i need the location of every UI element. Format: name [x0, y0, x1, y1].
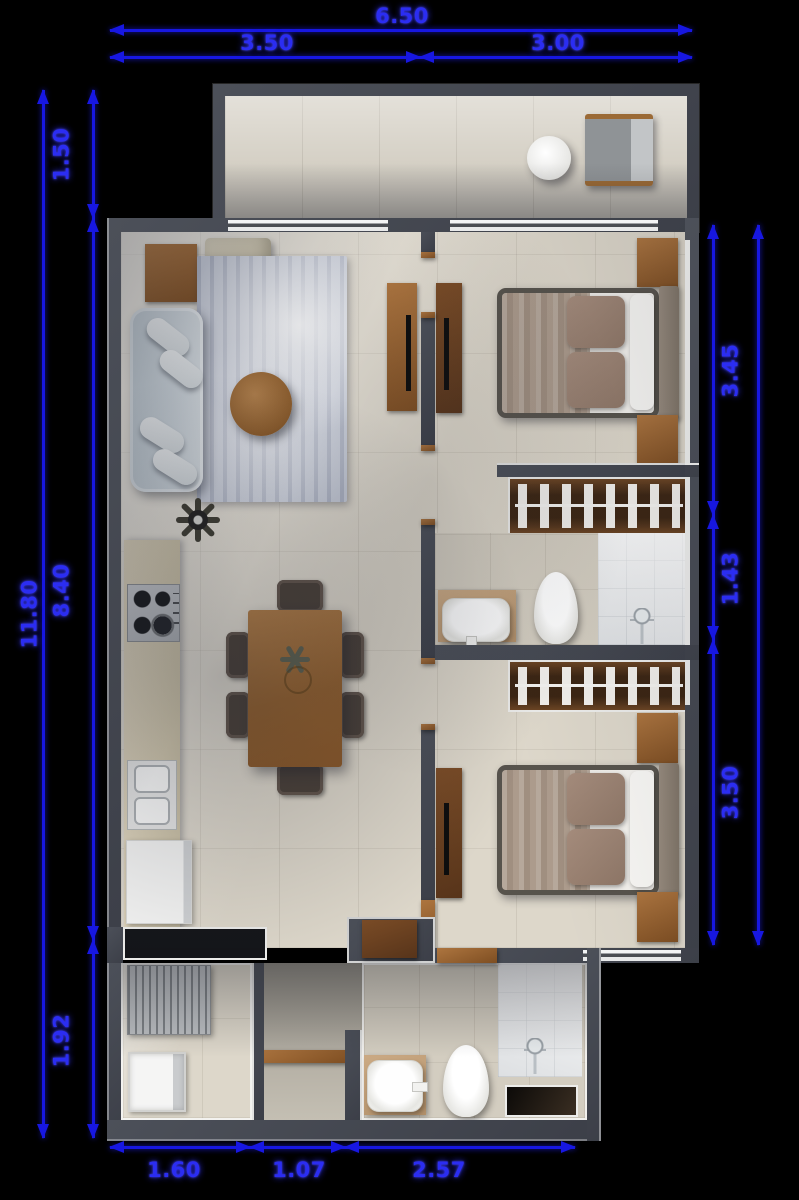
kitchen-sink [127, 760, 177, 830]
shower-fixture [524, 1038, 546, 1074]
dining-chair [340, 632, 364, 678]
bed-pillow [567, 829, 625, 885]
wall-hall-bathroom2 [345, 1030, 362, 1120]
door-sill [421, 519, 435, 525]
plant-pot [188, 510, 208, 530]
hall-door-sill [256, 1050, 348, 1063]
wall-bottom-left-stub [107, 927, 123, 963]
dining-chair [226, 692, 250, 738]
bathroom2-dark-mat [505, 1085, 578, 1117]
door-sill [421, 252, 435, 258]
wall-hallway [421, 232, 435, 252]
stove [127, 584, 180, 642]
closet-rail [515, 504, 682, 507]
wall-hallway [421, 730, 435, 900]
coffee-table [230, 372, 292, 436]
entry-doorway [362, 920, 417, 958]
dim-label-right-seg2: 1.43 [721, 545, 742, 613]
dim-label-left-seg1: 1.50 [52, 121, 73, 189]
dim-label-top-seg2: 3.00 [526, 33, 590, 54]
door-sill [421, 724, 435, 730]
dim-label-bottom-seg2: 1.07 [267, 1160, 331, 1181]
wall-hallway [421, 318, 435, 445]
dim-line-right-outer [757, 225, 760, 945]
living-side-table [145, 244, 197, 302]
dining-chair [340, 692, 364, 738]
tv-screen [406, 315, 411, 391]
dim-line-top-seg2 [420, 56, 692, 59]
bathroom2-door-sill [437, 948, 497, 963]
dim-line-right-seg3 [712, 640, 715, 945]
door-sill [421, 658, 435, 664]
dining-chair [277, 580, 323, 612]
closet-2 [508, 660, 690, 712]
dresser-tv [444, 803, 449, 875]
nightstand [637, 415, 678, 463]
wall-laundry-hall [252, 963, 264, 1120]
closet-rail [515, 684, 682, 687]
dim-label-left-total: 11.80 [20, 581, 41, 649]
balcony-round-table [527, 136, 571, 180]
dim-label-right-seg3: 3.50 [721, 759, 742, 827]
dim-line-left-total [42, 90, 45, 1138]
tv-console [387, 283, 417, 411]
sink-basin [134, 765, 170, 793]
dim-line-left-seg3 [92, 940, 95, 1138]
dim-label-right-seg1: 3.45 [721, 337, 742, 405]
dresser-tv [444, 318, 449, 390]
dim-line-bottom-seg2 [250, 1146, 345, 1149]
dim-line-right-seg1 [712, 225, 715, 515]
dim-label-left-seg2: 8.40 [52, 557, 73, 625]
wall-ext-right [587, 948, 601, 1141]
door-sill [421, 445, 435, 451]
closet-1 [508, 477, 690, 535]
dresser [436, 768, 462, 898]
bed-pillow [567, 773, 625, 825]
bed-pillow [567, 296, 625, 348]
wall-bathroom1-bottom [435, 645, 699, 660]
drying-rack [127, 965, 211, 1035]
sliding-door-bedroom1 [450, 220, 658, 231]
dim-label-top-total: 6.50 [370, 6, 434, 27]
dim-line-top-seg1 [110, 56, 420, 59]
dim-label-left-seg3: 1.92 [52, 1007, 73, 1075]
dining-chair [226, 632, 250, 678]
dim-line-top-total [110, 29, 692, 32]
floor-plan-canvas: 6.50 3.50 3.00 11.80 1.50 8.40 1.92 3.45… [0, 0, 799, 1200]
wall-ext-bottom [107, 1120, 601, 1141]
wall-bedroom1-closet [497, 463, 699, 477]
dim-label-bottom-seg1: 1.60 [142, 1160, 206, 1181]
nightstand [637, 892, 678, 942]
headboard [659, 286, 679, 420]
dresser [436, 283, 462, 413]
dim-line-left-seg2 [92, 218, 95, 940]
dim-line-right-seg2 [712, 515, 715, 640]
washing-machine [128, 1052, 186, 1112]
dark-counter [123, 927, 267, 960]
door-sill [421, 312, 435, 318]
wall-ext-left [107, 963, 121, 1141]
bed-pillow-white [630, 771, 654, 887]
shower-fixture [630, 608, 654, 644]
bed-pillow-white [630, 294, 654, 410]
bathroom2-faucet [412, 1082, 428, 1092]
table-ring-decor [284, 666, 312, 694]
nightstand [637, 238, 678, 287]
sink-basin [134, 797, 170, 825]
headboard [659, 763, 679, 897]
wall-hallway [421, 525, 435, 658]
balcony-lounge-chair [585, 114, 653, 186]
refrigerator [126, 840, 192, 924]
dim-label-top-seg1: 3.50 [235, 33, 299, 54]
bed-pillow [567, 352, 625, 408]
dim-line-bottom-seg1 [110, 1146, 250, 1149]
nightstand [637, 713, 678, 763]
dining-chair [277, 763, 323, 795]
dim-line-bottom-seg3 [345, 1146, 575, 1149]
dim-label-bottom-seg3: 2.57 [407, 1160, 471, 1181]
dim-line-left-seg1 [92, 90, 95, 218]
wall-left [107, 218, 121, 963]
sliding-door-living [228, 220, 388, 231]
living-plant [176, 498, 220, 542]
